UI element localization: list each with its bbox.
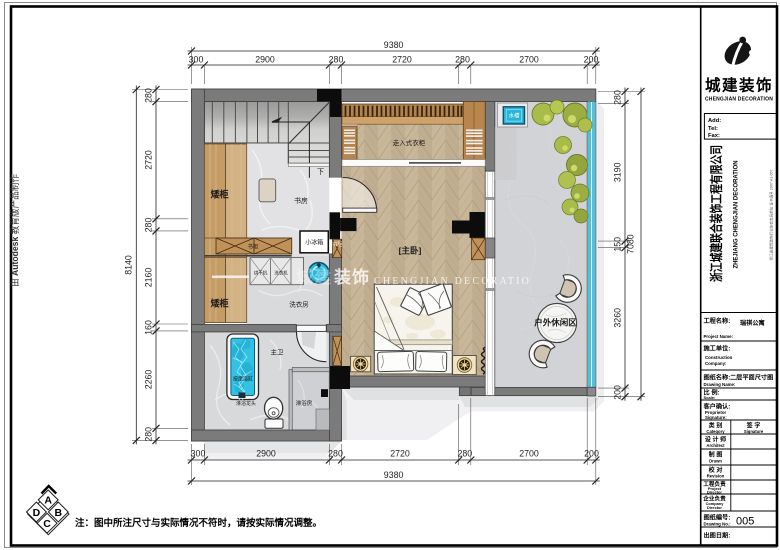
svg-text:2160: 2160 [144, 268, 154, 288]
svg-text:城建装饰: 城建装饰 [705, 76, 773, 95]
svg-text:280: 280 [613, 90, 623, 105]
svg-text:CHENGJIAN DECORATION: CHENGJIAN DECORATION [705, 97, 773, 103]
svg-text:瑞祺公寓: 瑞祺公寓 [740, 319, 765, 327]
svg-text:户外休闲区: 户外休闲区 [533, 318, 577, 328]
svg-text:280: 280 [328, 449, 343, 459]
svg-text:200: 200 [584, 55, 599, 65]
svg-text:注：图中所注尺寸与实际情况不符时，请按实际情况调整。: 注：图中所注尺寸与实际情况不符时，请按实际情况调整。 [75, 517, 322, 529]
svg-text:200: 200 [584, 449, 599, 459]
svg-text:Signature:: Signature: [705, 415, 727, 420]
svg-text:3190: 3190 [613, 162, 623, 182]
svg-text:水槽: 水槽 [508, 112, 520, 120]
svg-text:城建: 城建 [296, 267, 332, 287]
svg-text:Drawing No.:: Drawing No.: [704, 522, 732, 527]
svg-text:Drawn: Drawn [709, 458, 722, 463]
svg-text:005: 005 [736, 516, 754, 528]
svg-text:2700: 2700 [519, 449, 539, 459]
svg-text:下: 下 [317, 168, 324, 176]
svg-text:200: 200 [613, 385, 623, 400]
svg-text:由 Autodesk 教育版产品制作: 由 Autodesk 教育版产品制作 [9, 174, 21, 287]
svg-text:280: 280 [329, 55, 344, 65]
svg-text:浙江省建筑装饰行业协会会员单位 证书编号 2007-A1-0: 浙江省建筑装饰行业协会会员单位 证书编号 2007-A1-057 [769, 169, 774, 260]
svg-text:工程名称:: 工程名称: [704, 317, 731, 325]
svg-text:书柜: 书柜 [332, 241, 342, 248]
svg-text:施工单位:: 施工单位: [704, 345, 731, 353]
svg-text:书房: 书房 [294, 196, 308, 205]
svg-text:9380: 9380 [384, 40, 404, 50]
svg-text:Tel:: Tel: [708, 126, 718, 132]
svg-text:Drawing Name:: Drawing Name: [704, 382, 736, 387]
svg-text:B: B [55, 507, 63, 519]
svg-text:2260: 2260 [144, 370, 154, 390]
svg-text:制 图: 制 图 [709, 451, 723, 459]
svg-text:Signature: Signature [744, 429, 764, 434]
svg-text:300: 300 [191, 449, 206, 459]
svg-text:主卫: 主卫 [271, 348, 285, 357]
svg-text:C: C [43, 518, 51, 530]
svg-text:浙江城建联合装饰工程有限公司: 浙江城建联合装饰工程有限公司 [709, 145, 724, 282]
svg-text:Fax:: Fax: [708, 133, 720, 139]
svg-text:Revision: Revision [707, 474, 725, 479]
svg-text:3260: 3260 [613, 308, 623, 328]
svg-text:A: A [44, 495, 52, 507]
svg-text:Scale:: Scale: [704, 395, 716, 400]
svg-text:Company:: Company: [705, 361, 727, 366]
svg-text:Project Name:: Project Name: [704, 334, 734, 339]
svg-text:按摩浴缸: 按摩浴缸 [233, 376, 253, 383]
svg-text:淋浴龙头: 淋浴龙头 [236, 400, 256, 407]
svg-text:2700: 2700 [519, 55, 539, 65]
svg-text:CHENGJIAN DECORATIO: CHENGJIAN DECORATIO [374, 276, 531, 287]
svg-text:D: D [33, 507, 41, 519]
svg-text:矮柜: 矮柜 [210, 298, 229, 309]
svg-text:Architect: Architect [706, 443, 725, 448]
svg-text:图纸编号:: 图纸编号: [704, 514, 731, 522]
svg-text:出图日期:: 出图日期: [704, 532, 731, 540]
svg-text:Director: Director [707, 490, 722, 495]
svg-text:小冰箱: 小冰箱 [305, 238, 323, 246]
svg-text:160: 160 [144, 320, 154, 335]
svg-text:280: 280 [455, 55, 470, 65]
svg-text:装饰: 装饰 [333, 267, 370, 287]
svg-text:7080: 7080 [626, 234, 636, 254]
svg-text:图纸名称:: 图纸名称: [704, 374, 731, 382]
svg-text:ZHEJIANG CHENGJIAN DECORATION: ZHEJIANG CHENGJIAN DECORATION [734, 161, 740, 269]
svg-text:300: 300 [189, 55, 204, 65]
svg-text:矮柜: 矮柜 [210, 189, 229, 200]
svg-text:280: 280 [144, 427, 154, 442]
svg-text:2720: 2720 [392, 55, 412, 65]
svg-text:280: 280 [457, 449, 472, 459]
svg-text:烘干机: 烘干机 [254, 269, 268, 276]
svg-text:2900: 2900 [255, 55, 275, 65]
svg-text:洗衣机: 洗衣机 [274, 269, 288, 276]
svg-text:[主卧]: [主卧] [399, 246, 422, 256]
svg-text:150: 150 [613, 237, 623, 252]
svg-text:9380: 9380 [384, 470, 404, 480]
svg-text:2900: 2900 [256, 449, 276, 459]
svg-text:2720: 2720 [144, 150, 154, 170]
svg-text:8140: 8140 [124, 255, 134, 275]
svg-text:280: 280 [144, 218, 154, 233]
svg-text:Category: Category [706, 429, 725, 434]
svg-text:二层平面尺寸图: 二层平面尺寸图 [730, 374, 773, 382]
svg-text:洗衣房: 洗衣房 [289, 300, 309, 309]
svg-text:走入式衣柜: 走入式衣柜 [393, 138, 426, 147]
svg-text:Construction: Construction [705, 355, 733, 360]
svg-text:2720: 2720 [390, 449, 410, 459]
svg-text:280: 280 [144, 88, 154, 103]
svg-text:Add:: Add: [708, 118, 721, 124]
svg-text:淋浴房: 淋浴房 [296, 399, 313, 407]
svg-text:Director: Director [707, 505, 722, 510]
svg-text:书柜: 书柜 [247, 243, 259, 251]
